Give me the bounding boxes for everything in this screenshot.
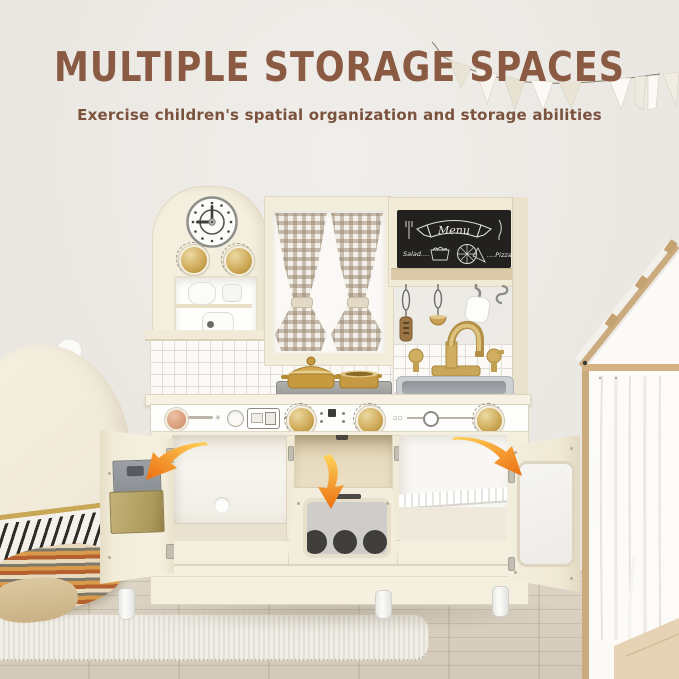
screw-6 [570, 447, 573, 450]
round-button [227, 410, 244, 427]
cabinet-leg-3 [492, 586, 509, 617]
panel-dot-2 [320, 412, 323, 415]
tower-knob-right [224, 246, 254, 276]
pan-icon [336, 364, 382, 392]
storage-arrow-down-icon [306, 452, 354, 512]
tower-shelf-strip [145, 330, 269, 341]
faucet-handle-right [491, 361, 497, 372]
curtain-tie-left [291, 297, 313, 308]
screw-1 [297, 502, 300, 505]
menu-right-item: ....Pizza [487, 251, 511, 259]
faucet-icon [404, 294, 504, 380]
toy-cup-small [222, 284, 242, 302]
panel-marks-right: ▫▫ [393, 414, 403, 422]
door-box-gold [109, 490, 164, 534]
panel-dot-3 [320, 420, 323, 423]
compartment-shelf [176, 304, 252, 308]
cavity-lower-area [399, 507, 507, 540]
door-window [517, 461, 575, 567]
screw-2 [386, 502, 389, 505]
sink-bowl [402, 381, 506, 394]
page-title: MULTIPLE STORAGE SPACES [0, 44, 679, 91]
tower-knob-left [179, 245, 209, 275]
base-plinth [150, 564, 529, 605]
panel-dot-4 [342, 412, 345, 415]
slider-ring [423, 411, 439, 427]
display-panel [247, 408, 280, 429]
product-image: MULTIPLE STORAGE SPACES Exercise childre… [0, 0, 679, 679]
display-screen-right [265, 412, 276, 425]
plinth-seam [151, 576, 528, 577]
toy-kettle [188, 282, 216, 305]
menu-title: Menu [437, 224, 470, 237]
screw-7 [514, 571, 517, 574]
panel-marks-left: ✳ [215, 414, 223, 422]
chalkboard-ledge [391, 268, 517, 280]
tent-rail [582, 364, 679, 371]
cabinet-leg-2 [375, 590, 392, 619]
panel-dot-5 [342, 420, 345, 423]
pot-icon [281, 356, 341, 394]
door-hinge-2 [166, 544, 175, 559]
panel-indicator [328, 409, 336, 417]
screw-8 [570, 577, 573, 580]
tent-post [582, 364, 589, 679]
cavity-hole [214, 497, 230, 513]
chalkboard: Menu Salad.... ....Pizza [388, 197, 520, 287]
cup-handle-hole [207, 321, 214, 328]
display-screen-left [251, 413, 263, 423]
chalkboard-surface: Menu Salad.... ....Pizza [397, 210, 511, 268]
burner-plate-3 [363, 530, 387, 554]
kitchen-window [264, 196, 394, 366]
storage-arrow-left-icon [138, 442, 210, 492]
storage-arrow-right-icon [448, 436, 524, 488]
page-subtitle: Exercise children's spatial organization… [0, 106, 679, 124]
cavity-floor [172, 523, 288, 541]
curtain-tie-right [347, 297, 369, 308]
menu-left-item: Salad.... [403, 250, 429, 258]
burner-plate-1 [303, 530, 327, 554]
clock-icon [186, 196, 238, 248]
cabinet-leg-1 [118, 588, 135, 620]
latch-hardware-1 [288, 446, 294, 461]
khaki-pillow [0, 574, 80, 627]
screw-3 [108, 472, 111, 475]
screw-4 [108, 556, 111, 559]
towel-bar-knob [165, 408, 188, 431]
chalk-art: Menu Salad.... ....Pizza [397, 210, 511, 268]
control-panel: ✳ ▫▫ [150, 404, 529, 433]
oven-latch [336, 435, 348, 440]
faucet-handle-left [413, 361, 419, 372]
burner-plate-2 [333, 530, 357, 554]
door-hinge-4 [508, 557, 515, 571]
